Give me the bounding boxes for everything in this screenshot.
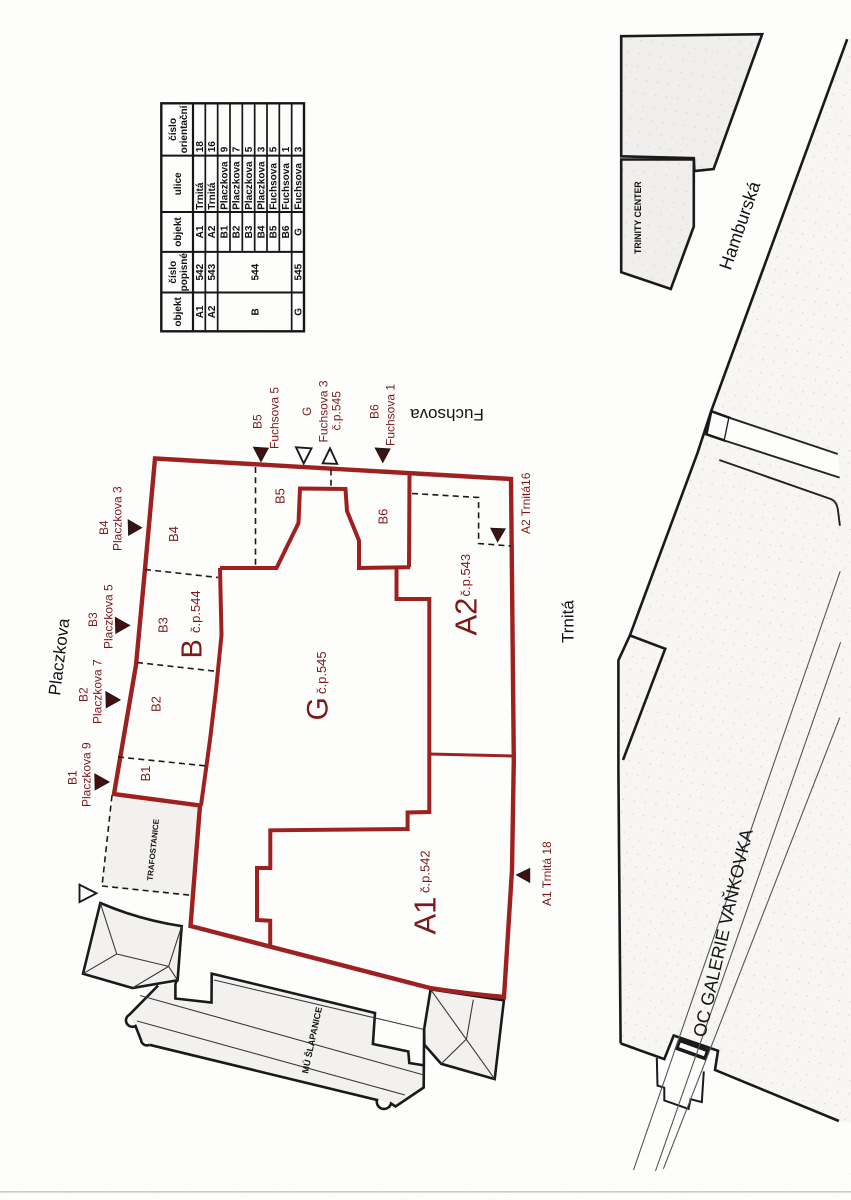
svg-text:Placzkova: Placzkova	[244, 161, 255, 210]
svg-text:3: 3	[256, 146, 267, 152]
svg-text:B5: B5	[251, 414, 265, 429]
svg-text:Fuchsova 5: Fuchsova 5	[268, 387, 282, 449]
svg-text:B3: B3	[244, 225, 255, 238]
svg-text:B6: B6	[368, 404, 382, 419]
svg-text:B: B	[177, 639, 209, 658]
svg-text:B2: B2	[77, 687, 91, 702]
svg-text:Placzkova: Placzkova	[232, 161, 243, 210]
svg-text:B6: B6	[281, 225, 292, 238]
svg-text:5: 5	[244, 146, 255, 152]
svg-text:B6: B6	[376, 509, 391, 525]
svg-text:542: 542	[195, 263, 206, 280]
svg-text:ulice: ulice	[173, 172, 184, 195]
svg-text:G: G	[294, 228, 305, 236]
svg-text:B4: B4	[166, 526, 181, 542]
svg-text:A2: A2	[207, 225, 218, 238]
svg-text:B5: B5	[269, 225, 280, 238]
svg-text:číslo: číslo	[168, 118, 179, 141]
svg-text:B2: B2	[232, 225, 243, 238]
svg-text:Placzkova 5: Placzkova 5	[102, 584, 116, 649]
svg-text:A1 Trnitá 18: A1 Trnitá 18	[540, 841, 554, 906]
svg-text:18: 18	[195, 141, 206, 153]
svg-text:Placzkova 3: Placzkova 3	[111, 486, 125, 551]
svg-text:Trnitá: Trnitá	[207, 182, 218, 210]
svg-text:B: B	[250, 308, 261, 315]
svg-text:Fuchsova: Fuchsova	[410, 405, 484, 424]
svg-text:TRINITY CENTER: TRINITY CENTER	[633, 181, 643, 254]
svg-text:Fuchsova: Fuchsova	[294, 163, 305, 210]
svg-text:B5: B5	[273, 488, 288, 504]
svg-text:1: 1	[281, 146, 292, 152]
svg-text:A1: A1	[195, 225, 206, 238]
svg-text:Fuchsova: Fuchsova	[269, 163, 280, 210]
svg-text:Placzkova 7: Placzkova 7	[91, 659, 105, 724]
svg-text:543: 543	[207, 263, 218, 280]
svg-text:č.p.544: č.p.544	[188, 590, 203, 633]
svg-text:3: 3	[294, 146, 305, 152]
svg-text:G: G	[294, 308, 305, 316]
svg-text:16: 16	[207, 141, 218, 153]
svg-text:B3: B3	[86, 612, 100, 627]
svg-text:Fuchsova 3: Fuchsova 3	[317, 380, 331, 442]
svg-text:č.p.543: č.p.543	[458, 554, 473, 597]
svg-text:G: G	[300, 407, 314, 416]
svg-text:Fuchsova: Fuchsova	[281, 163, 292, 210]
svg-text:B1: B1	[219, 225, 230, 238]
svg-text:Placzkova: Placzkova	[256, 161, 267, 210]
svg-text:A2 Trnitá16: A2 Trnitá16	[519, 472, 533, 534]
svg-text:9: 9	[219, 146, 230, 152]
svg-text:Placzkova 9: Placzkova 9	[80, 742, 94, 807]
svg-text:č.p.545: č.p.545	[314, 651, 329, 694]
svg-text:B4: B4	[97, 520, 111, 535]
svg-text:číslo: číslo	[168, 261, 179, 284]
svg-text:č.p.542: č.p.542	[418, 850, 433, 893]
svg-text:A2: A2	[449, 598, 484, 636]
svg-text:5: 5	[269, 146, 280, 152]
svg-text:544: 544	[250, 263, 261, 280]
svg-text:Trnitá: Trnitá	[195, 182, 206, 210]
svg-text:A1: A1	[408, 897, 443, 935]
svg-text:Placzkova: Placzkova	[219, 161, 230, 210]
svg-text:7: 7	[232, 146, 243, 152]
svg-text:B4: B4	[256, 225, 267, 238]
svg-text:B1: B1	[138, 766, 153, 782]
svg-text:Trnitá: Trnitá	[559, 600, 578, 643]
svg-text:G: G	[302, 697, 335, 720]
svg-text:popisné: popisné	[179, 253, 190, 292]
svg-text:B3: B3	[156, 617, 171, 633]
svg-text:B1: B1	[66, 770, 80, 785]
svg-text:B2: B2	[149, 696, 164, 712]
svg-text:Fuchsova 1: Fuchsova 1	[384, 384, 398, 446]
svg-text:objekt: objekt	[173, 297, 184, 327]
svg-text:č.p.545: č.p.545	[330, 391, 344, 431]
svg-text:orientační: orientační	[179, 104, 190, 153]
svg-text:545: 545	[294, 263, 305, 280]
svg-text:objekt: objekt	[173, 217, 184, 247]
svg-text:A2: A2	[207, 305, 218, 318]
svg-text:A1: A1	[195, 305, 206, 318]
